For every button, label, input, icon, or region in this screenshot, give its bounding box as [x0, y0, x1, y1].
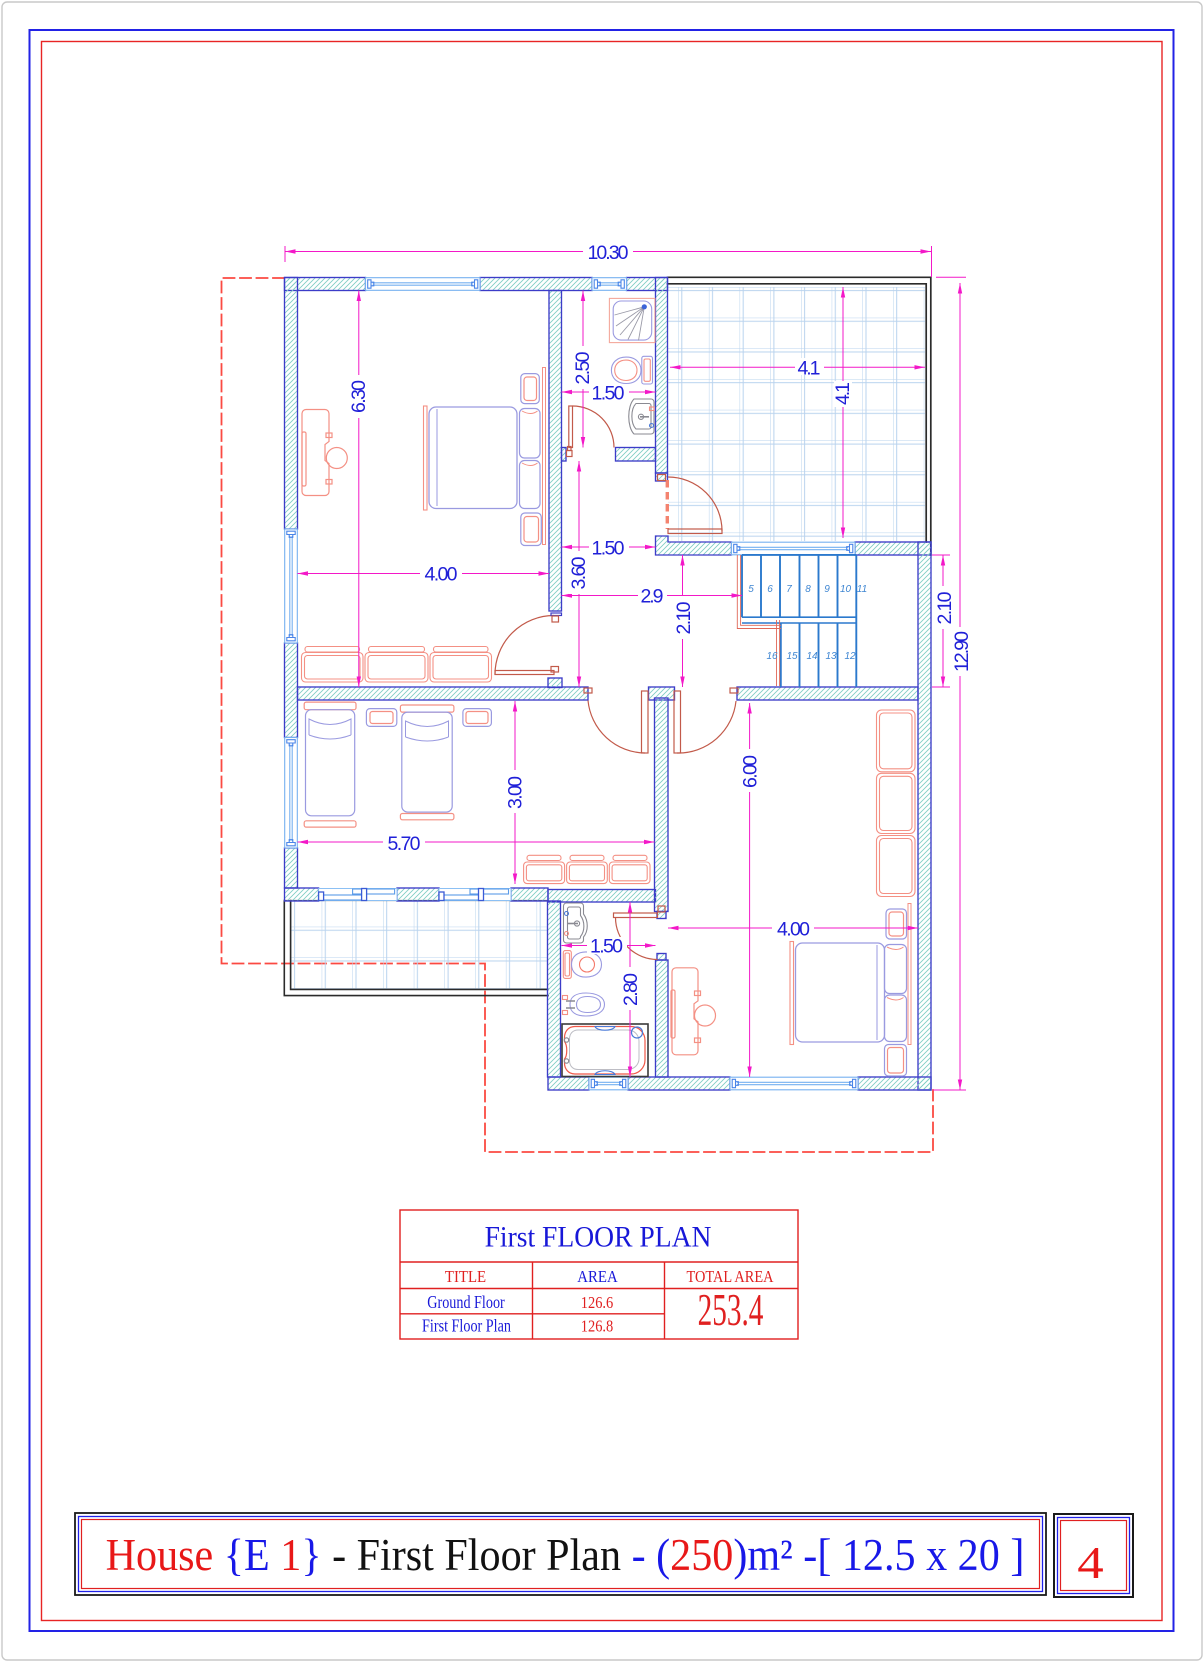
svg-text:Ground Floor: Ground Floor [427, 1294, 505, 1313]
svg-text:8: 8 [805, 584, 811, 595]
svg-text:4.00: 4.00 [425, 564, 458, 586]
svg-text:2.9: 2.9 [641, 586, 664, 608]
svg-text:5: 5 [748, 584, 754, 595]
svg-text:TOTAL AREA: TOTAL AREA [687, 1268, 775, 1286]
svg-text:5.70: 5.70 [388, 833, 421, 855]
svg-text:2.10: 2.10 [934, 591, 956, 624]
svg-text:4.1: 4.1 [798, 358, 821, 380]
svg-text:10: 10 [840, 584, 852, 595]
svg-text:6.00: 6.00 [740, 755, 762, 788]
svg-text:126.6: 126.6 [581, 1294, 614, 1312]
svg-text:6.30: 6.30 [348, 380, 370, 413]
svg-text:TITLE: TITLE [445, 1268, 486, 1286]
svg-text:15: 15 [786, 651, 798, 662]
svg-text:253.4: 253.4 [698, 1286, 764, 1336]
svg-text:First FLOOR PLAN: First FLOOR PLAN [485, 1220, 712, 1253]
svg-text:1.50: 1.50 [592, 538, 625, 560]
svg-text:2.50: 2.50 [572, 351, 594, 384]
svg-text:12.90: 12.90 [951, 631, 973, 672]
svg-text:3.00: 3.00 [505, 776, 527, 809]
svg-text:2.80: 2.80 [620, 973, 642, 1006]
svg-text:2.10: 2.10 [673, 601, 695, 634]
svg-text:11: 11 [857, 584, 867, 595]
svg-text:126.8: 126.8 [581, 1317, 614, 1335]
svg-text:6: 6 [767, 584, 773, 595]
svg-text:First Floor Plan: First Floor Plan [422, 1317, 511, 1336]
svg-text:AREA: AREA [577, 1268, 618, 1286]
svg-text:14: 14 [806, 651, 818, 662]
svg-text:9: 9 [824, 584, 830, 595]
svg-text:3.60: 3.60 [568, 556, 590, 589]
svg-text:7: 7 [786, 584, 792, 595]
svg-text:13: 13 [825, 651, 837, 662]
svg-text:4: 4 [1077, 1537, 1103, 1588]
svg-text:House {E 1} - First Floor Plan: House {E 1} - First Floor Plan - (250)m²… [106, 1531, 1025, 1581]
svg-text:12: 12 [844, 651, 856, 662]
svg-text:1.50: 1.50 [592, 383, 625, 405]
svg-text:1.50: 1.50 [590, 936, 623, 958]
svg-text:16: 16 [766, 651, 778, 662]
svg-text:10.30: 10.30 [588, 242, 629, 264]
svg-text:4.1: 4.1 [832, 382, 854, 405]
svg-text:4.00: 4.00 [777, 919, 810, 941]
